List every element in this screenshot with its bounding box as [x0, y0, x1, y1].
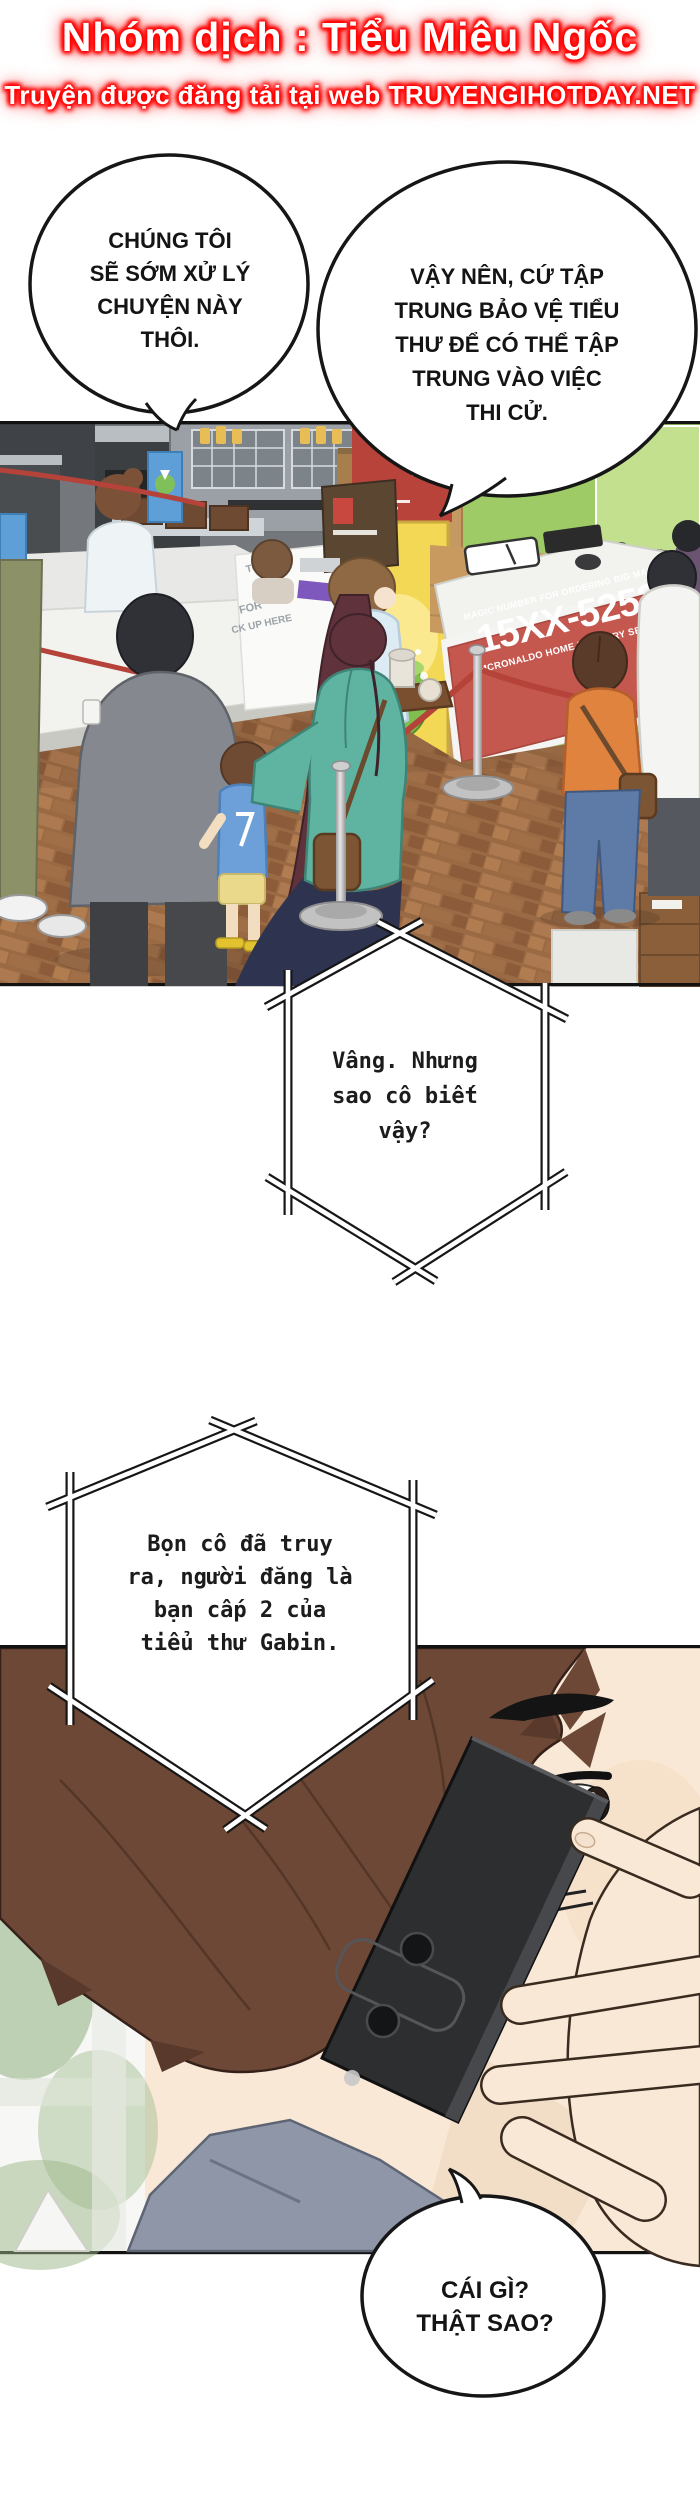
bubble-line: THƯ ĐỂ CÓ THỂ TẬP — [357, 328, 657, 362]
bubble-line: THẬT SAO? — [375, 2307, 595, 2340]
bubble-line: tiểu thư Gabin. — [95, 1627, 385, 1660]
bubble-line: TRUNG VÀO VIỆC — [357, 362, 657, 396]
speech-bubble-instruction: VẬY NÊN, CỨ TẬP TRUNG BẢO VỆ TIỂU THƯ ĐỂ… — [357, 260, 657, 430]
bubble-line: vậy? — [280, 1114, 530, 1149]
bubble-line: CHÚNG TÔI — [45, 224, 295, 257]
bubble-line: VẬY NÊN, CỨ TẬP — [357, 260, 657, 294]
bubble-line: bạn cấp 2 của — [95, 1594, 385, 1627]
phone-voice-bubble-2: Bọn cô đã truy ra, người đăng là bạn cấp… — [95, 1528, 385, 1660]
bubble-line: THÔI. — [45, 323, 295, 356]
bubble-line: Vâng. Nhưng — [280, 1044, 530, 1079]
bubble-line: THI CỬ. — [357, 396, 657, 430]
bubble-line: CÁI GÌ? — [375, 2274, 595, 2307]
bubble-line: TRUNG BẢO VỆ TIỂU — [357, 294, 657, 328]
bubble-line: SẼ SỚM XỬ LÝ — [45, 257, 295, 290]
bubble-line: Bọn cô đã truy — [95, 1528, 385, 1561]
bubble-line: sao cô biết — [280, 1079, 530, 1114]
bubble-line: ra, người đăng là — [95, 1561, 385, 1594]
bubble-line: CHUYỆN NÀY — [45, 290, 295, 323]
speech-bubble-guard: CHÚNG TÔI SẼ SỚM XỬ LÝ CHUYỆN NÀY THÔI. — [45, 224, 295, 356]
speech-bubble-reaction: CÁI GÌ? THẬT SAO? — [375, 2274, 595, 2340]
phone-voice-bubble-1: Vâng. Nhưng sao cô biết vậy? — [280, 1044, 530, 1149]
comic-page: Nhóm dịch : Tiểu Miêu Ngốc Truyện được đ… — [0, 0, 700, 2500]
